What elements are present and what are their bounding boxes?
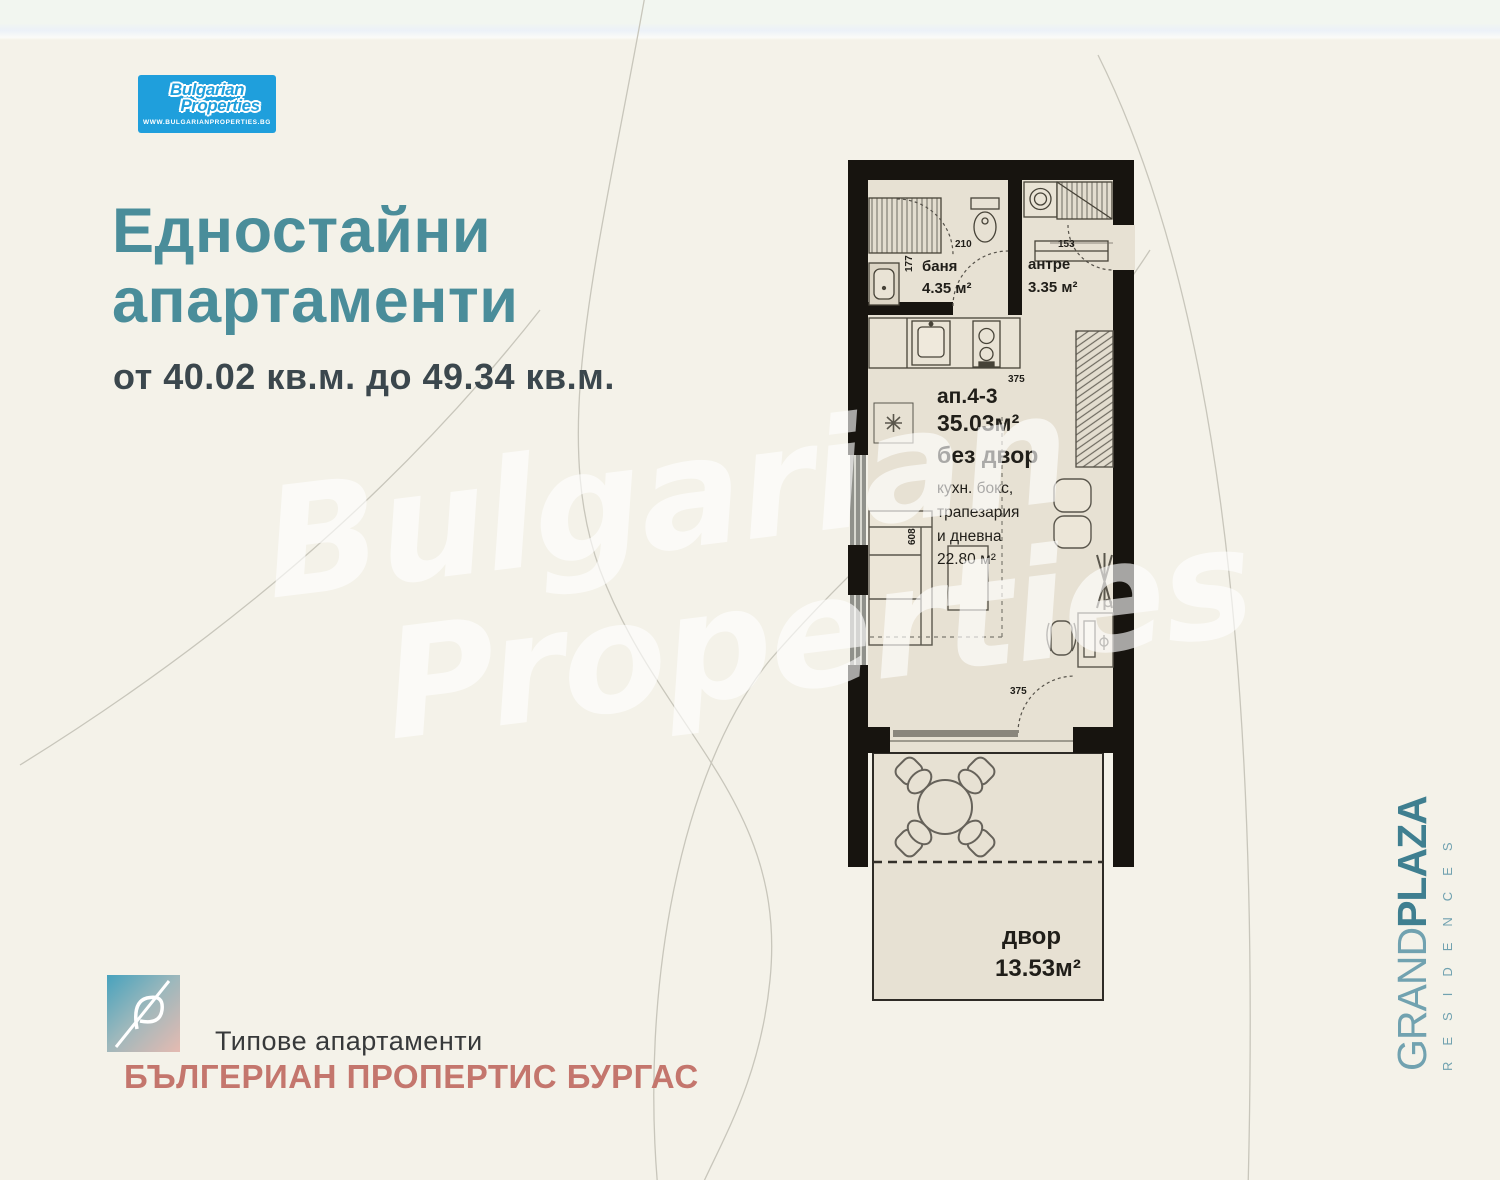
footer-caption: Типове апартаменти bbox=[215, 1026, 483, 1057]
chair-icon bbox=[1054, 479, 1091, 512]
dim-room-width: 375 bbox=[1010, 686, 1027, 697]
kitchen-counter bbox=[869, 318, 1020, 368]
dim-kitchen: 375 bbox=[1008, 374, 1025, 385]
floor-plan: баня 4.35 м² антре 3.35 м² ап.4-3 35.03м… bbox=[845, 155, 1140, 1005]
logo-word-properties: Properties bbox=[180, 97, 259, 114]
chair-icon bbox=[1054, 516, 1091, 548]
grand-text: GRAND bbox=[1389, 928, 1435, 1071]
residences-text: RESIDENCES bbox=[1440, 737, 1455, 1071]
dim-toilet: 210 bbox=[955, 239, 972, 250]
entry-doorway-floor bbox=[1113, 225, 1135, 270]
washing-machine-icon bbox=[1024, 182, 1057, 217]
sofa-icon bbox=[869, 511, 932, 645]
dim-room-height: 608 bbox=[907, 528, 918, 545]
page-title: Едностайни апартаменти bbox=[112, 196, 518, 336]
bulgarian-properties-logo: Bulgarian Properties WWW.BULGARIANPROPER… bbox=[138, 75, 276, 133]
apartment-note: без двор bbox=[937, 442, 1038, 468]
bathroom-area: 4.35 м² bbox=[922, 280, 971, 297]
bathroom-label: баня bbox=[922, 258, 957, 275]
logo-website: WWW.BULGARIANPROPERTIES.BG bbox=[143, 120, 271, 127]
living-label-2: трапезария bbox=[937, 504, 1019, 521]
entrance-label: антре bbox=[1028, 256, 1070, 273]
yard-area-label: 13.53м² bbox=[995, 955, 1081, 982]
yard-label: двор bbox=[1002, 923, 1061, 950]
wardrobe-icon bbox=[1076, 331, 1113, 467]
grand-plaza-logo bbox=[107, 975, 180, 1052]
poster: Bulgarian Properties WWW.BULGARIANPROPER… bbox=[0, 0, 1500, 1180]
shower-icon bbox=[869, 198, 941, 253]
grand-plaza-wordmark: GRANDPLAZA bbox=[1392, 733, 1433, 1071]
entrance-area: 3.35 м² bbox=[1028, 279, 1077, 296]
logo-p-icon bbox=[107, 975, 180, 1052]
title-line1: Едностайни bbox=[112, 196, 518, 266]
grand-plaza-brand: GRANDPLAZA RESIDENCES bbox=[1392, 733, 1455, 1071]
living-label-3: и дневна bbox=[937, 528, 1002, 545]
decorative-arcs bbox=[0, 0, 1500, 1180]
snowflake-icon bbox=[885, 414, 902, 432]
apartment-area: 35.03м² bbox=[937, 410, 1020, 436]
agency-name: БЪЛГЕРИАН ПРОПЕРТИС БУРГАС bbox=[124, 1058, 699, 1096]
area-range-subtitle: от 40.02 кв.м. до 49.34 кв.м. bbox=[113, 356, 615, 398]
title-line2: апартаменти bbox=[112, 266, 518, 336]
plaza-text: PLAZA bbox=[1389, 796, 1435, 928]
living-area: 22.80 м² bbox=[937, 551, 996, 568]
dim-shower: 177 bbox=[904, 255, 915, 272]
living-label-1: кухн. бокс, bbox=[937, 480, 1013, 497]
dim-hall: 153 bbox=[1058, 239, 1075, 250]
apartment-id: ап.4-3 bbox=[937, 385, 998, 408]
